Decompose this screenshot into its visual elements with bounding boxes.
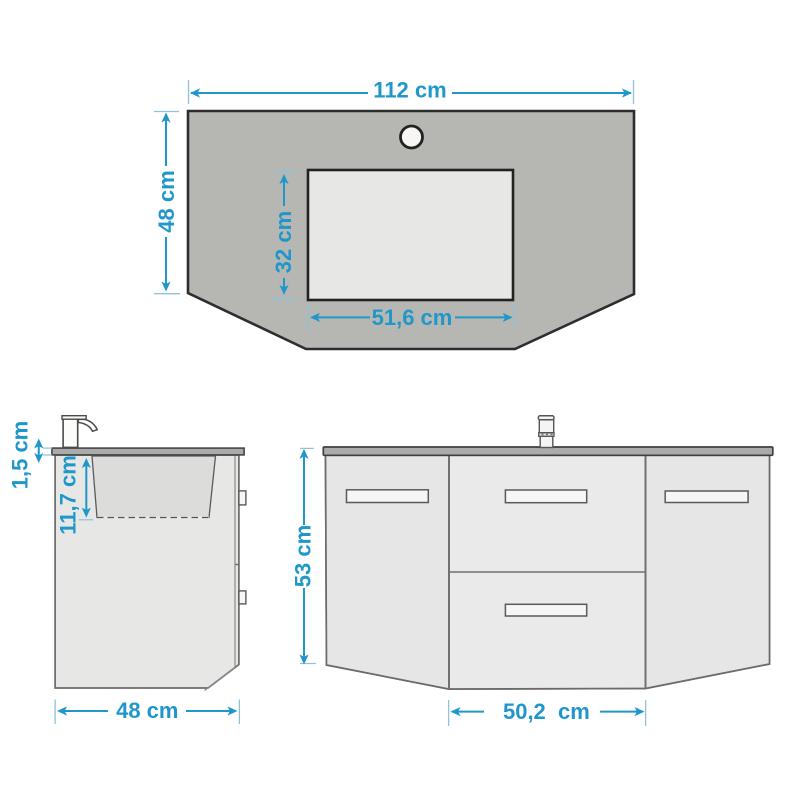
svg-text:1,5 cm: 1,5 cm [8, 421, 33, 490]
svg-text:11,7 cm: 11,7 cm [56, 455, 81, 535]
svg-text:51,6 cm: 51,6 cm [372, 305, 453, 330]
svg-text:48 cm: 48 cm [116, 698, 178, 723]
svg-text:53 cm: 53 cm [291, 525, 316, 587]
svg-text:32 cm: 32 cm [271, 211, 296, 273]
svg-text:48 cm: 48 cm [154, 170, 179, 232]
svg-text:50,2 cm: 50,2 cm [503, 699, 590, 724]
svg-text:112 cm: 112 cm [373, 78, 446, 103]
